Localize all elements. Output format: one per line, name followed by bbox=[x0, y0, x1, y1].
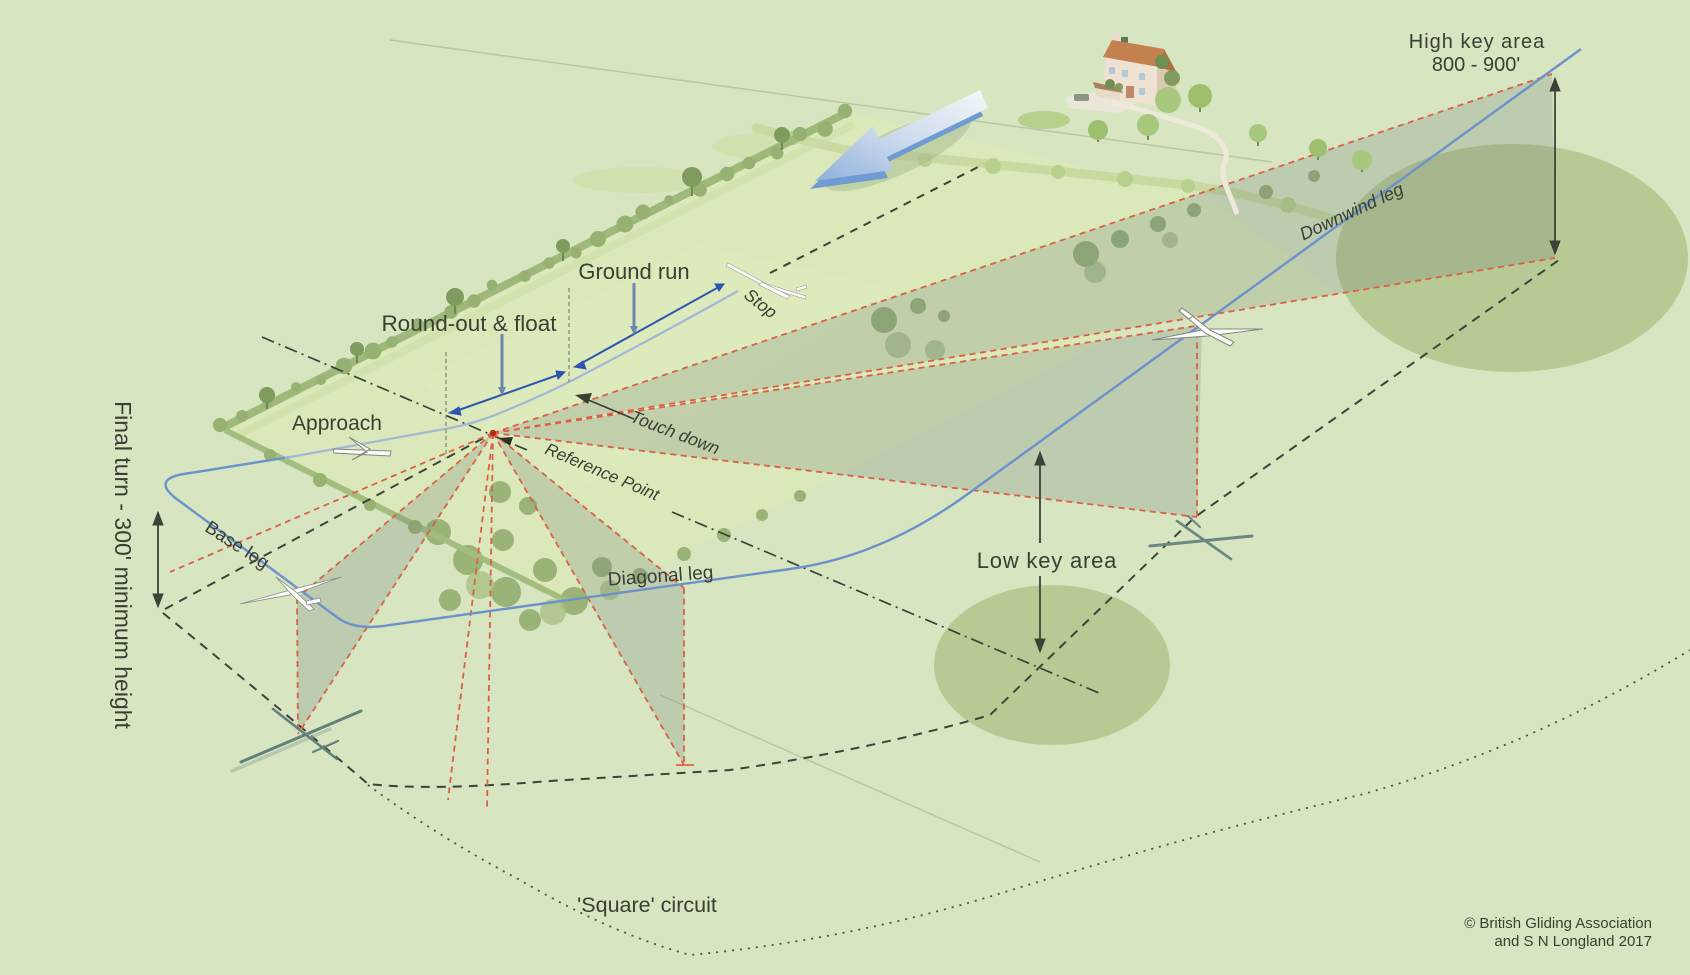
svg-text:Round-out & float: Round-out & float bbox=[381, 311, 557, 336]
svg-text:High key area: High key area bbox=[1409, 31, 1545, 53]
svg-text:and S N Longland 2017: and S N Longland 2017 bbox=[1494, 933, 1652, 950]
svg-text:Final turn - 300' minimum heig: Final turn - 300' minimum height bbox=[110, 401, 136, 729]
svg-text:Approach: Approach bbox=[292, 412, 382, 435]
svg-text:Ground run: Ground run bbox=[578, 259, 689, 284]
svg-text:'Square' circuit: 'Square' circuit bbox=[577, 893, 717, 917]
svg-text:800 - 900': 800 - 900' bbox=[1432, 54, 1520, 76]
svg-text:© British Gliding Association: © British Gliding Association bbox=[1464, 915, 1652, 932]
svg-text:Low key area: Low key area bbox=[977, 548, 1117, 573]
